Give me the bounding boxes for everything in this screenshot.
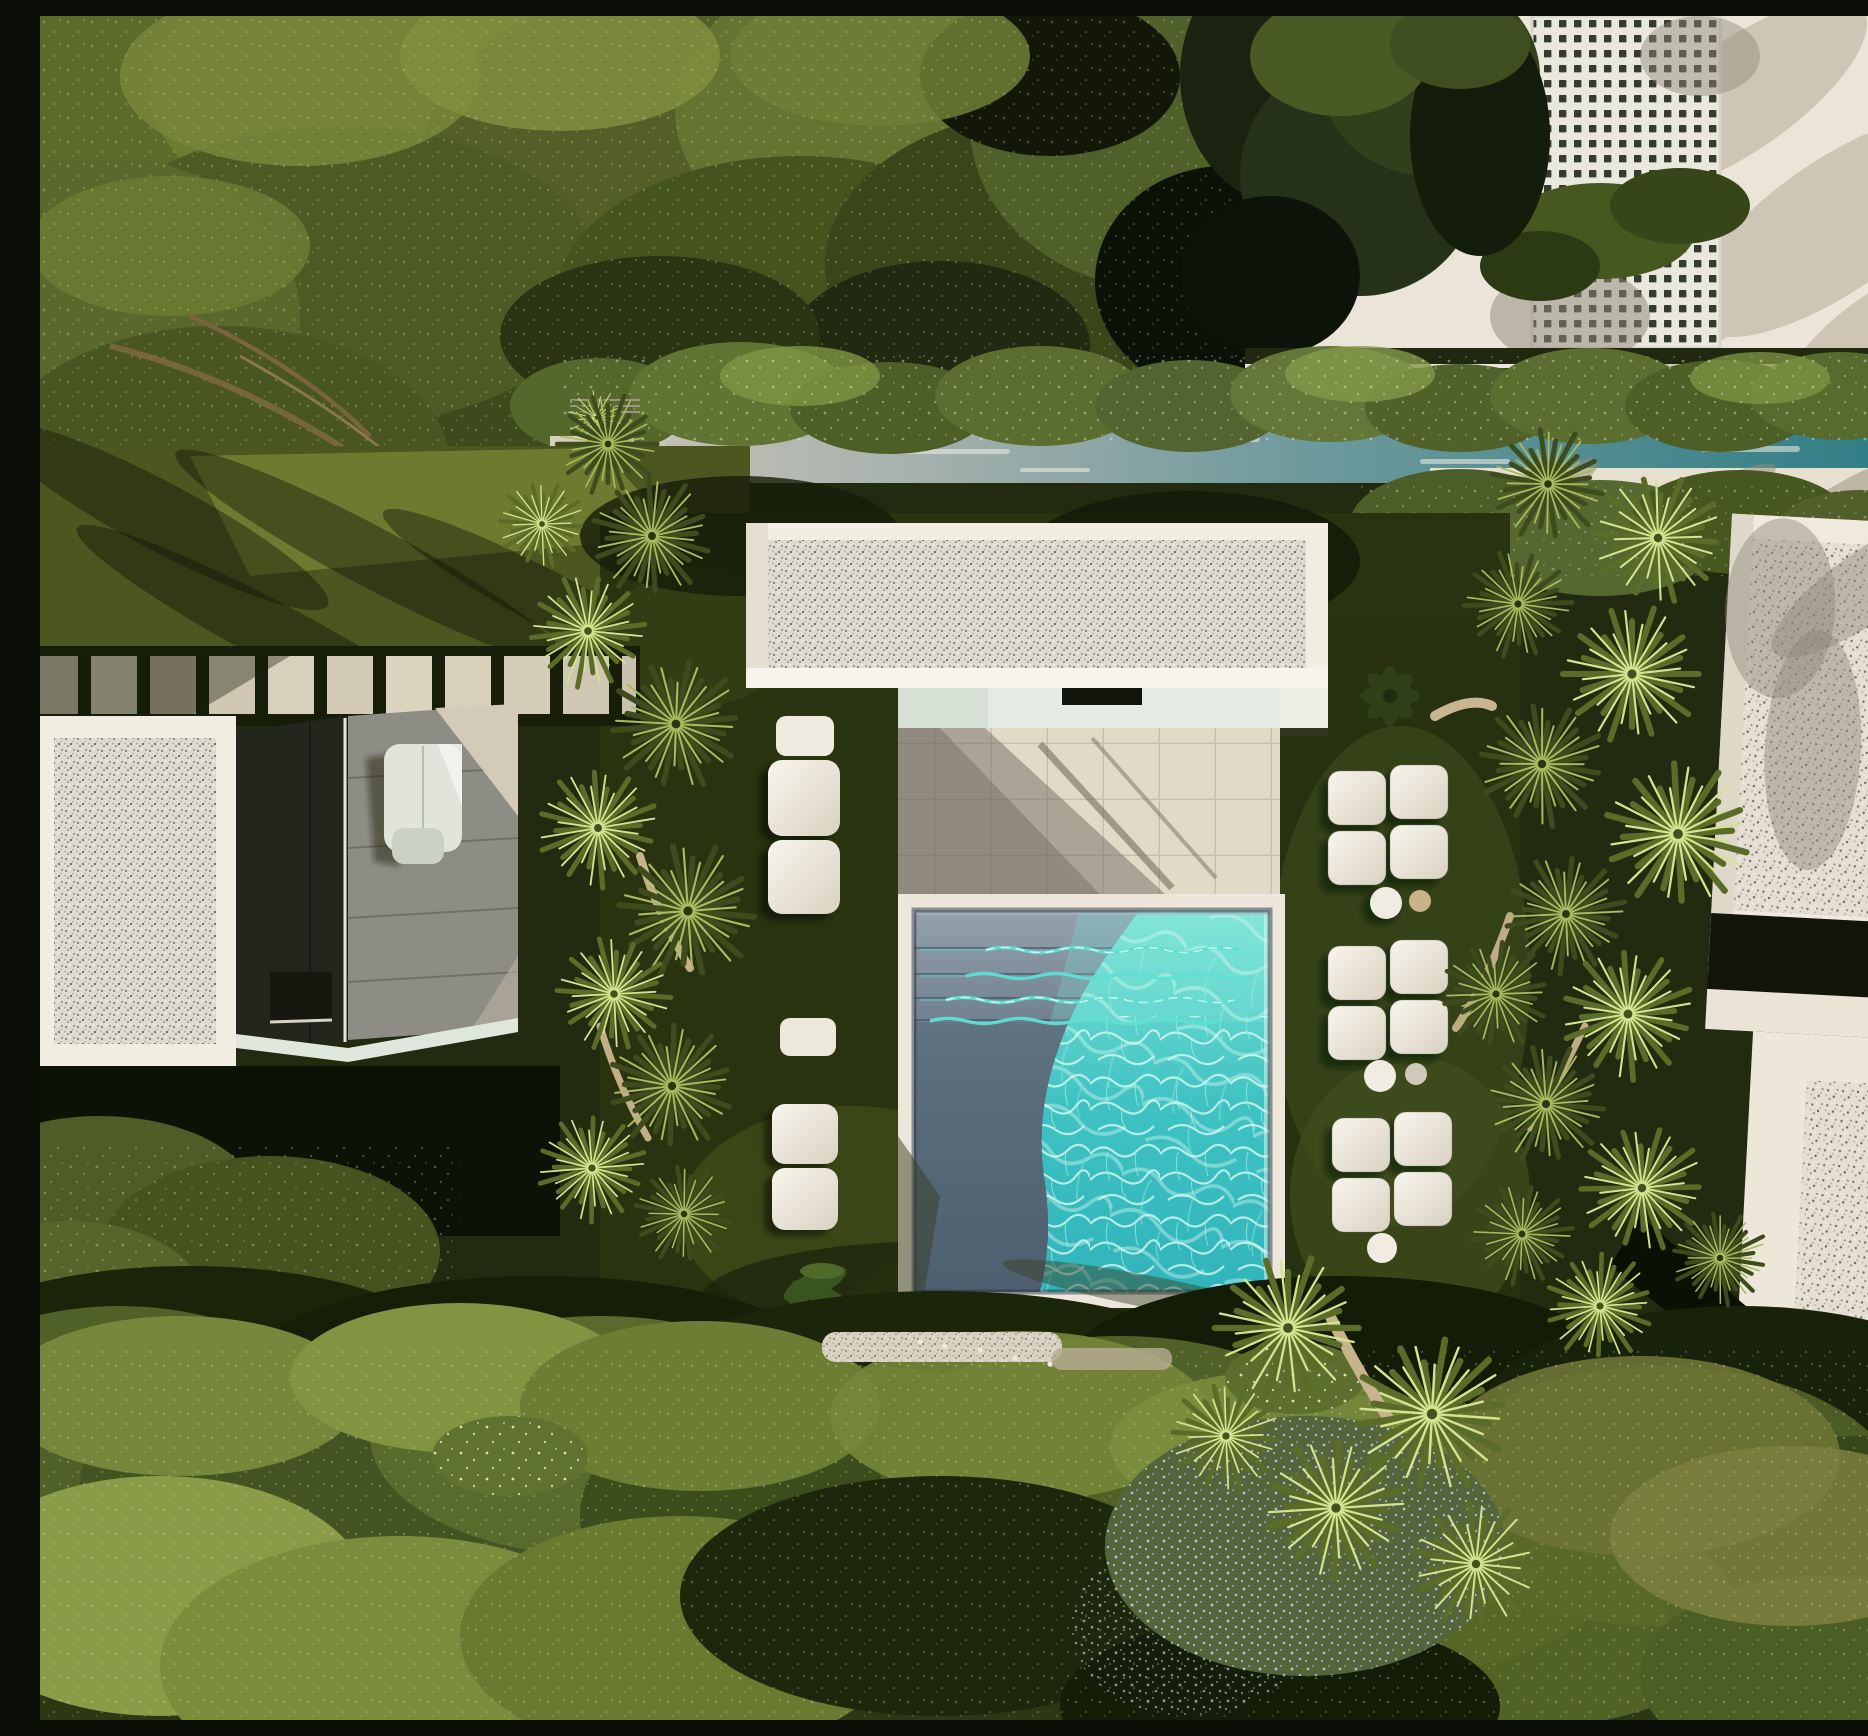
sun-lounger-cushion: [776, 716, 834, 756]
aerial-villa-photo: Aerial drone view of a modern white vill…: [40, 16, 1868, 1720]
sun-lounger-cushion: [1390, 765, 1448, 819]
sun-lounger-cushion: [1332, 1118, 1390, 1172]
sun-lounger-cushion: [1328, 1006, 1386, 1060]
sun-lounger-cushion: [1328, 946, 1386, 1000]
pool-patio: [898, 728, 1280, 894]
sun-lounger-cushion: [1390, 1000, 1448, 1054]
side-table: [1364, 1060, 1396, 1092]
stepping-stone: [445, 656, 491, 714]
stepping-stone: [386, 656, 432, 714]
stepping-stone: [327, 656, 373, 714]
sun-lounger-cushion: [772, 1168, 838, 1230]
side-table: [1370, 887, 1402, 919]
sun-lounger-cushion: [1394, 1172, 1452, 1226]
sun-lounger-cushion: [1332, 1178, 1390, 1232]
sun-lounger-cushion: [1394, 1112, 1452, 1166]
left-pavilion-gravel-roof: [54, 738, 216, 1044]
terrace-daybed: [384, 744, 462, 864]
leafy-plant: [1360, 666, 1420, 726]
sun-lounger-cushion: [1390, 825, 1448, 879]
sun-lounger-cushion: [780, 1018, 836, 1056]
sun-lounger-cushion: [768, 840, 840, 914]
sun-lounger-cushion: [1328, 831, 1386, 885]
side-table: [1367, 1233, 1397, 1263]
terrace-window: [270, 972, 332, 1022]
sun-lounger-cushion: [1328, 771, 1386, 825]
cabana-door-slot: [1062, 688, 1142, 705]
sun-lounger-cushion: [772, 1104, 838, 1164]
stepping-stone-path: [40, 656, 636, 716]
sun-lounger-cushion: [768, 760, 840, 836]
sun-lounger-cushion: [1390, 940, 1448, 994]
side-table: [1409, 890, 1431, 912]
cabana-fascia: [746, 668, 1328, 688]
sun-loungers-right: [1320, 765, 1452, 1263]
